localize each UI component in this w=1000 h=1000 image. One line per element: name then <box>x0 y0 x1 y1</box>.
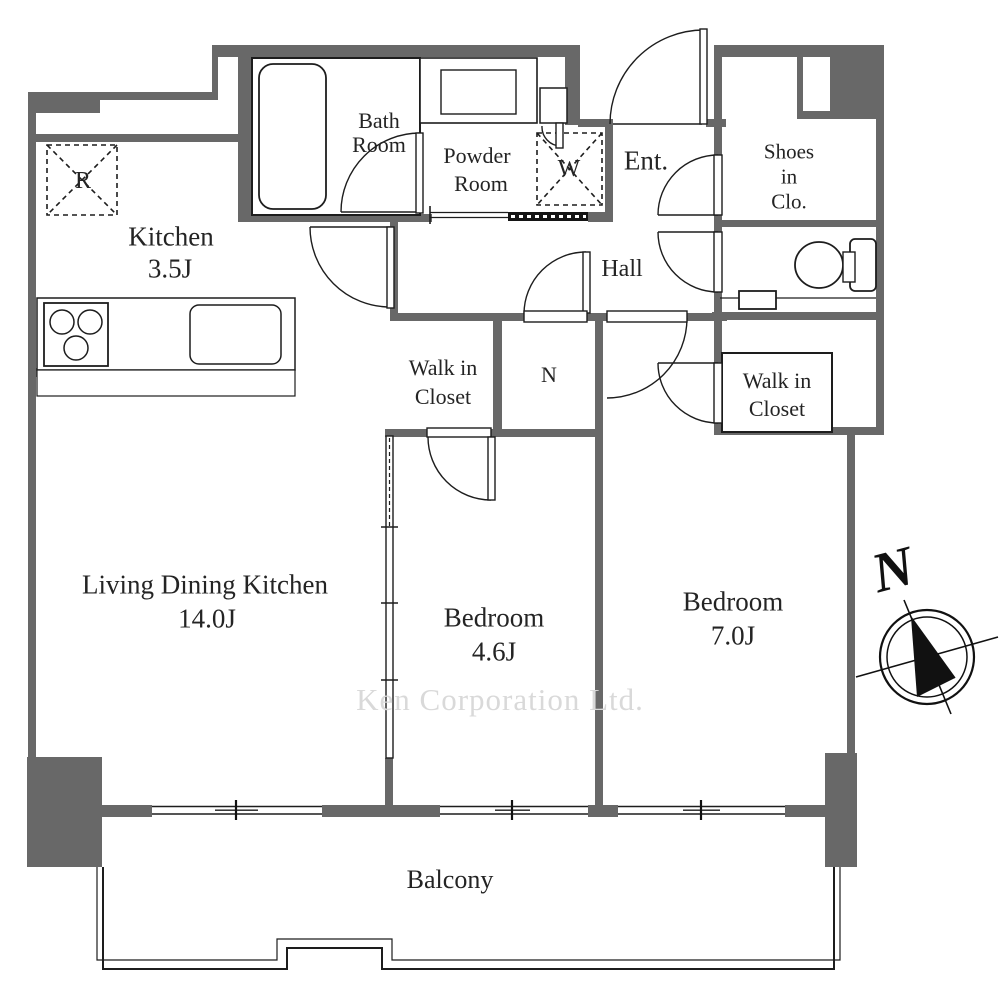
wall-left-outer <box>28 92 36 758</box>
pillar-right <box>825 753 857 867</box>
kitchen-label: Kitchen <box>128 224 213 251</box>
wall-top-bath-section <box>212 45 580 57</box>
shoes-closet-label-2: in <box>781 167 797 188</box>
n-closet-label: N <box>541 364 557 386</box>
ldk-label: Living Dining Kitchen <box>82 572 328 599</box>
entrance-label: Ent. <box>624 148 668 175</box>
ldk-door-arc <box>310 227 390 307</box>
wall-wic2-left-upper <box>714 321 722 363</box>
ldk-size: 14.0J <box>178 606 236 633</box>
wall-shoes-stub-v <box>797 57 803 117</box>
compass-needle <box>911 617 955 697</box>
wall-bedroom-divider-right <box>595 313 603 805</box>
bedroom-small-label: Bedroom <box>444 605 545 632</box>
shoes-door-leaf <box>714 155 722 215</box>
bath-door-leaf <box>416 133 423 213</box>
hall-label: Hall <box>601 257 642 281</box>
wall-bottom-3 <box>588 805 618 817</box>
powder-label-2: Room <box>454 173 508 195</box>
wall-bottom-4 <box>785 805 825 817</box>
utility-cabinet <box>540 88 567 123</box>
wall-shoes-stub-h <box>797 111 877 119</box>
bedroom-large-label: Bedroom <box>683 589 784 616</box>
wc-door-leaf <box>714 232 722 292</box>
entrance-door-arc <box>610 30 704 124</box>
vanity-sink <box>441 70 516 114</box>
wall-step-thick <box>28 100 100 113</box>
pillar-shoes-corner <box>830 51 877 117</box>
kitchen-sink <box>190 305 281 364</box>
shoes-closet-label-3: Clo. <box>771 192 807 213</box>
refrigerator-label: R <box>75 169 91 193</box>
wic2-door-arc <box>658 363 718 423</box>
floor-plan: Kitchen 3.5J Living Dining Kitchen 14.0J… <box>0 0 1000 1000</box>
entrance-door-leaf <box>700 29 707 124</box>
wic-b-label-2: Closet <box>749 398 805 420</box>
wic2-door-leaf <box>714 363 722 423</box>
wall-kitchen-top <box>28 134 247 142</box>
shoes-closet-label-1: Shoes <box>764 142 814 163</box>
powder-label-1: Powder <box>443 145 510 167</box>
utility-door-leaf <box>556 123 563 148</box>
wall-right-outer-lower <box>847 433 855 755</box>
wall-bottom-2 <box>322 805 440 817</box>
ldk-door-leaf <box>387 227 394 308</box>
bedroom-large-size: 7.0J <box>711 623 755 650</box>
wall-bottom-1 <box>100 805 152 817</box>
bedroom-large-door-arc <box>607 318 687 398</box>
bath-label-1: Bath <box>358 110 400 132</box>
wall-powder-stub <box>588 212 613 222</box>
burner-2 <box>78 310 102 334</box>
windows <box>152 800 785 820</box>
burner-3 <box>64 336 88 360</box>
n-closet-door-closed <box>524 311 587 322</box>
bedroom-small-size: 4.6J <box>472 639 516 666</box>
wall-closet-bottom-2 <box>491 429 603 437</box>
wall-right-outer-upper <box>876 45 884 435</box>
wall-ent-shoes-3 <box>714 292 722 321</box>
washing-machine-label: W <box>558 157 581 181</box>
wall-powder-right <box>605 125 613 222</box>
wall-ldk-divider-bottom <box>385 758 393 805</box>
wall-wic1-n-divider <box>493 321 502 430</box>
wc-door-arc <box>658 232 718 292</box>
bathtub <box>259 64 326 209</box>
wc-hand-basin <box>739 291 776 309</box>
wall-shoes-wc-divider <box>718 220 884 227</box>
walls <box>27 45 884 867</box>
wic-a-label-1: Walk in <box>409 357 478 379</box>
wall-wc-bottom <box>712 312 884 320</box>
wic1-door-arc <box>428 437 491 500</box>
balcony-label: Balcony <box>407 867 494 893</box>
wall-ent-shoes-2 <box>714 215 722 232</box>
n-closet-door-arc <box>524 252 586 314</box>
kitchen-counter-front <box>37 370 295 396</box>
wic1-door-leaf <box>488 437 495 500</box>
toilet-bowl <box>795 242 843 288</box>
wall-ent-shoes-1 <box>714 45 722 155</box>
bath-label-2: Room <box>352 134 406 156</box>
wall-step-upper <box>28 92 218 100</box>
n-closet-door-leaf <box>583 252 590 313</box>
pillar-left <box>27 757 102 867</box>
toilet-flush-panel <box>843 252 855 282</box>
burner-1 <box>50 310 74 334</box>
watermark: Ken Corporation Ltd. <box>356 682 644 718</box>
wic1-door-closed <box>427 428 491 437</box>
wic-a-label-2: Closet <box>415 386 471 408</box>
compass-rose <box>856 600 998 714</box>
wall-bath-left <box>238 45 252 222</box>
kitchen-size: 3.5J <box>148 256 192 283</box>
bedroom-large-door-closed <box>607 311 687 322</box>
wall-step-vertical <box>212 45 218 100</box>
wic-b-label-1: Walk in <box>743 370 812 392</box>
